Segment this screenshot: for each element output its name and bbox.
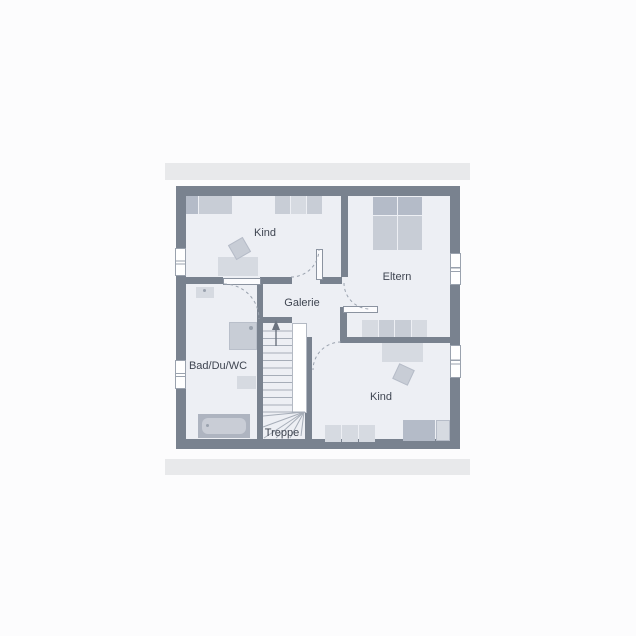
wc-toilet [237,376,256,389]
bed-pillow [186,196,198,214]
wardrobe-eltern [362,320,427,337]
bathtub [198,414,250,438]
tap-icon [203,289,206,292]
room-label-kind-bottom: Kind [370,391,392,403]
wall-outer-right-lower [450,378,460,439]
bed-mattress [403,420,435,441]
bed-pillow [436,420,450,441]
wall-outer-right-mid [450,285,460,345]
wall-outer-left-lower [176,389,186,439]
door-leaf-bad [223,278,261,285]
desk-kind-top [218,257,258,276]
wardrobe-kind-top [275,196,322,214]
shower-head-icon [249,326,253,330]
wall-galerie-north-c [320,277,342,284]
stair-treads [263,324,292,412]
window-eltern [450,253,461,285]
bed-pillow [398,197,422,215]
wall-galerie-north-b [260,277,292,284]
floor-plan: Kind Eltern Galerie Bad/Du/WC Kind Trepp… [0,0,636,636]
room-label-kind-top: Kind [254,227,276,239]
wall-stair-top-stub [257,317,292,323]
bed-mattress [199,196,232,214]
bed-kind-bottom [403,420,450,441]
washbasin [196,287,214,298]
wall-eltern-west-upper [341,196,348,277]
window-kind-top [175,248,186,276]
door-leaf-eltern [343,306,378,313]
bed-mattress [373,216,397,250]
stairwell-void [292,323,307,413]
wall-outer-left-mid [176,276,186,360]
window-kind-bottom [450,345,461,378]
bed-pillow [373,197,397,215]
door-leaf-kind-top [316,249,323,280]
double-bed-eltern [373,197,422,250]
eave-bar-top [165,163,470,180]
room-label-galerie: Galerie [284,297,319,309]
wall-outer-left-upper [176,196,186,248]
wall-galerie-north-a [186,277,223,284]
window-bad [175,360,186,389]
drain-icon [206,424,209,427]
wall-outer-right-upper [450,196,460,253]
bed-mattress [398,216,422,250]
wardrobe-kind-bottom [325,425,375,442]
wall-outer-top [176,186,460,196]
room-label-bad: Bad/Du/WC [189,360,247,372]
shower [229,322,257,350]
desk-kind-bottom [382,343,423,362]
room-label-eltern: Eltern [383,271,412,283]
room-label-treppe: Treppe [265,427,299,439]
bed-kind-top [186,196,232,214]
eave-bar-bottom [165,459,470,475]
